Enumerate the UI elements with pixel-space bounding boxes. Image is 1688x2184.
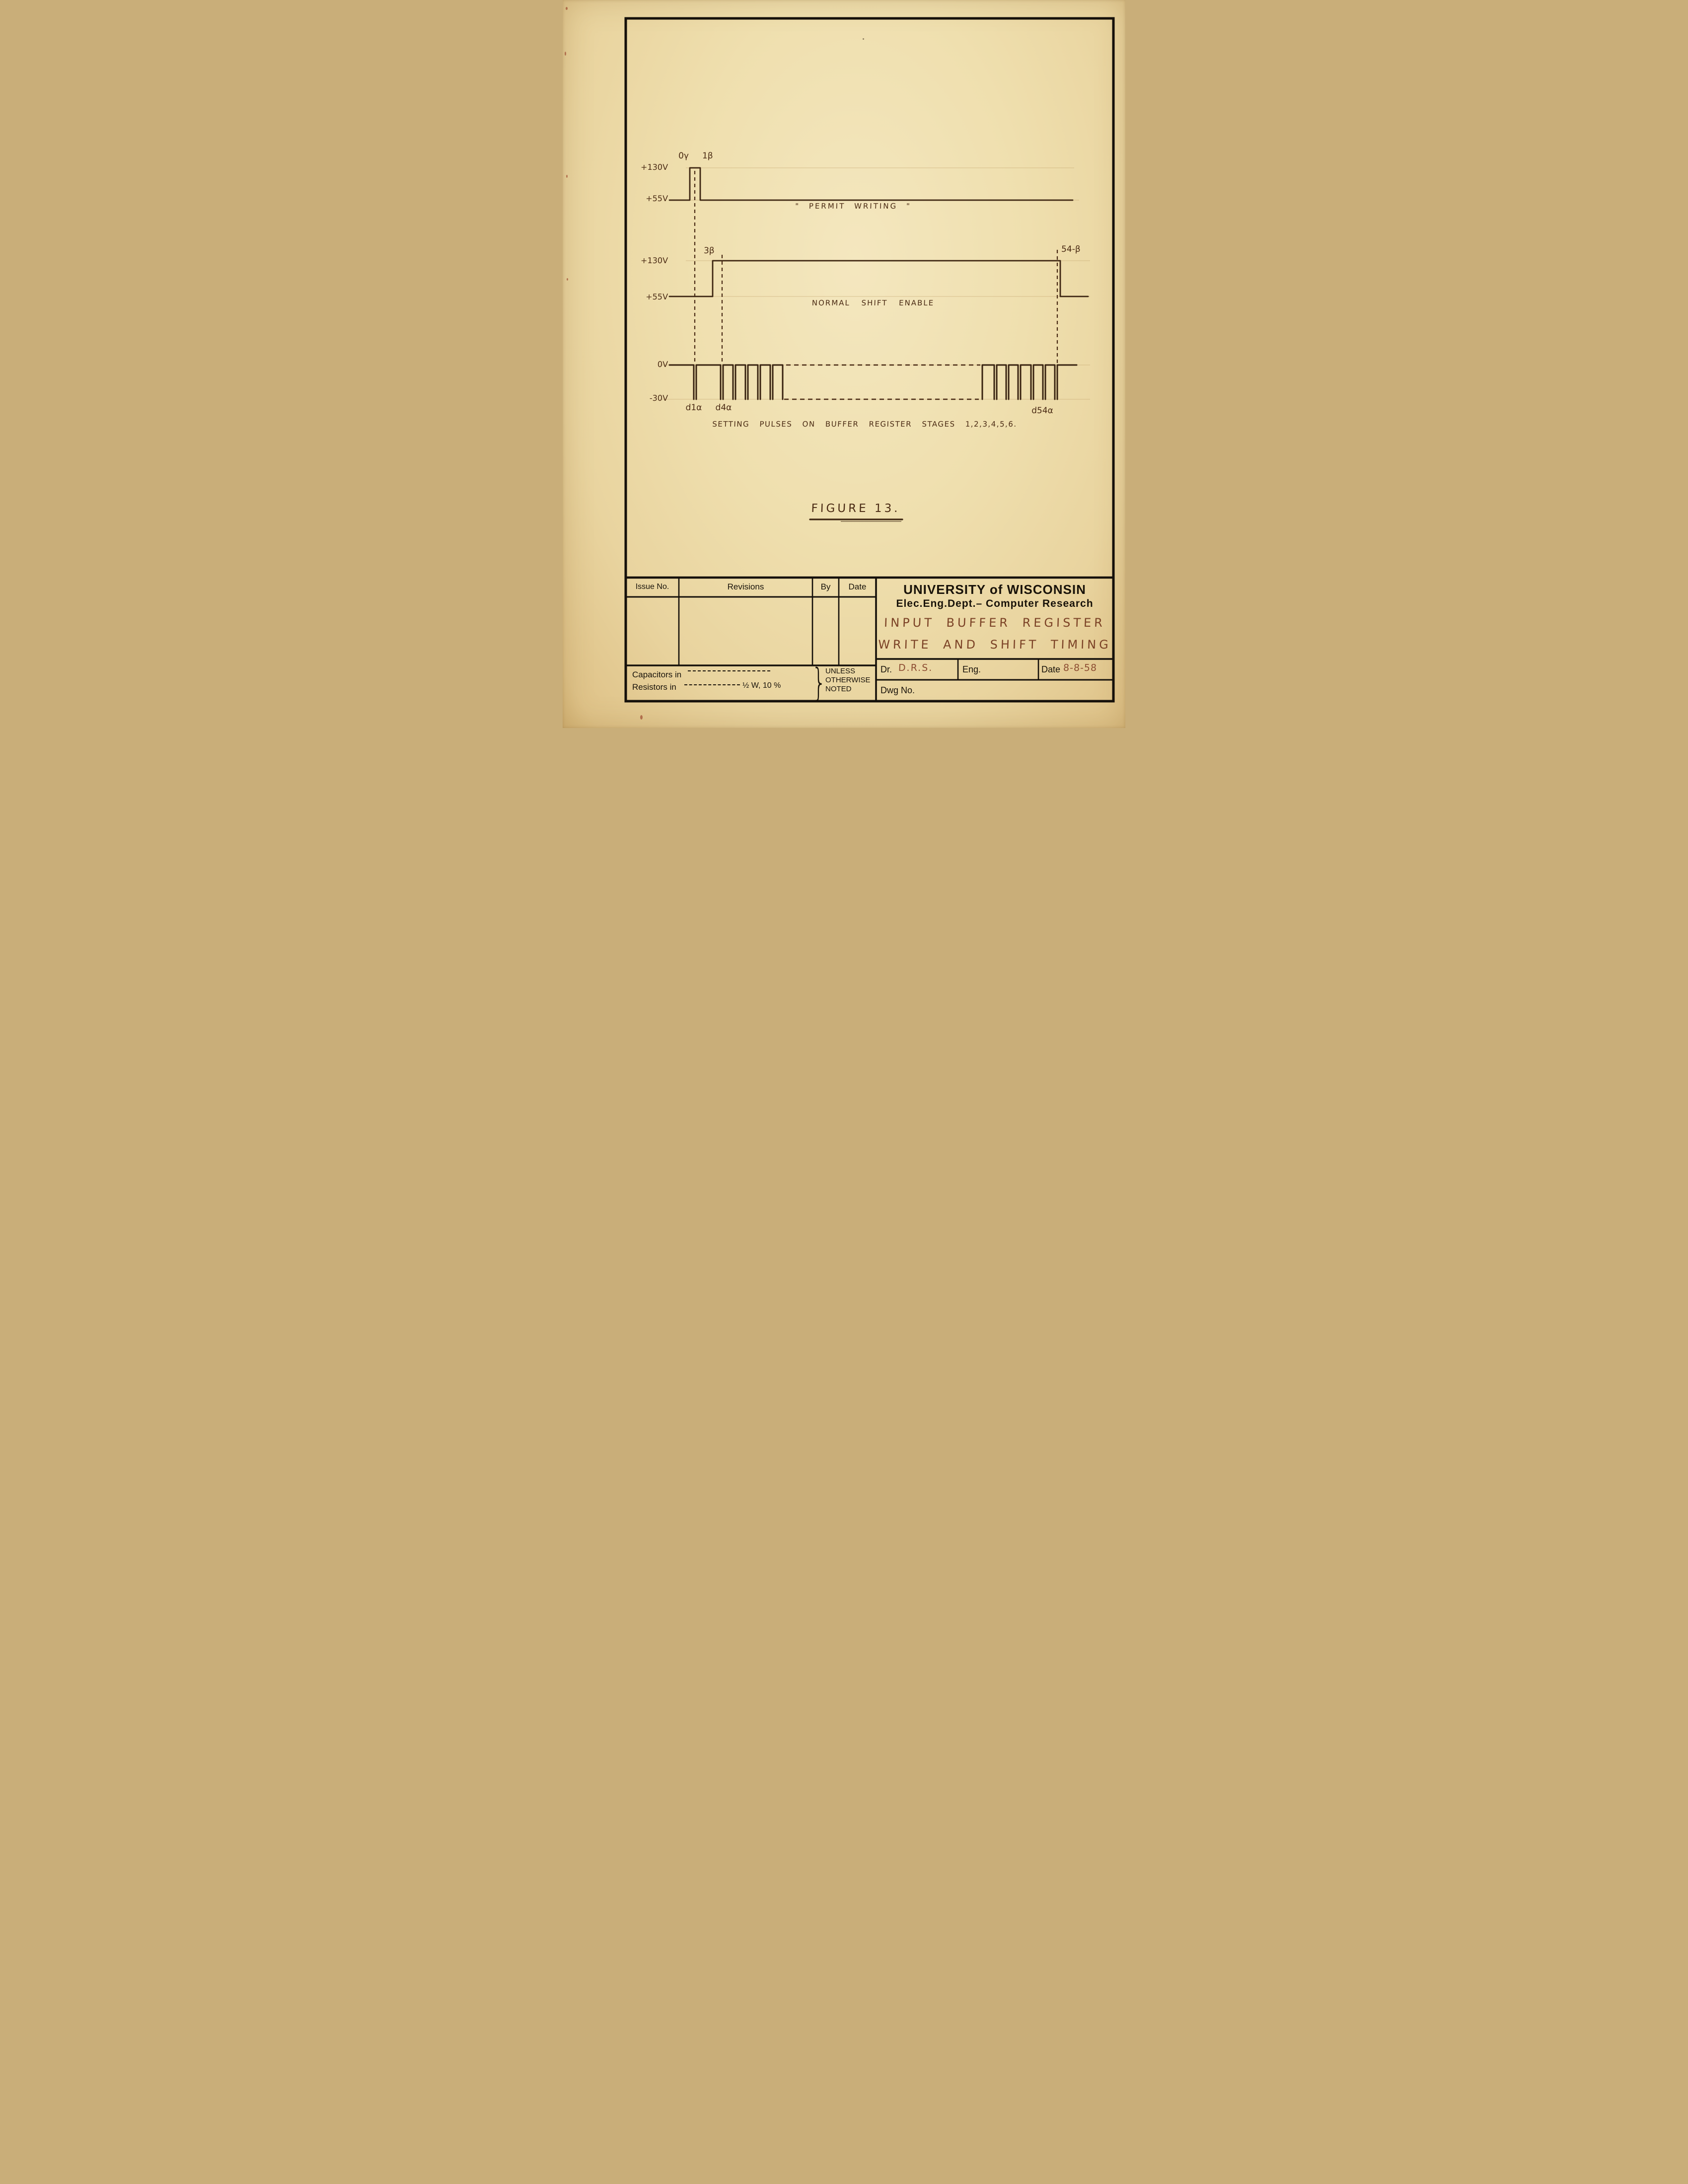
w1-low-voltage-label: +55V xyxy=(641,194,668,203)
w3-d54-label: d54α xyxy=(1026,406,1059,416)
revisions-header: Revisions xyxy=(679,582,812,592)
setting-pulses-right-group xyxy=(982,365,1077,399)
drawing-title-line1: INPUT BUFFER REGISTER xyxy=(876,616,1114,630)
university-name: UNIVERSITY of WISCONSIN xyxy=(876,582,1113,597)
w1-caption: " PERMIT WRITING " xyxy=(776,202,931,211)
by-header: By xyxy=(812,582,839,592)
notes-line3: NOTED xyxy=(825,685,852,693)
notes-line1: UNLESS xyxy=(825,667,855,675)
issue-no-header: Issue No. xyxy=(626,582,679,591)
w3-d1-label: d1α xyxy=(681,403,707,413)
w1-high-voltage-label: +130V xyxy=(637,162,668,172)
department-name: Elec.Eng.Dept.– Computer Research xyxy=(876,598,1113,610)
w3-low-voltage-label: -30V xyxy=(640,393,668,403)
date-label: Date xyxy=(1041,664,1060,675)
resistors-note: Resistors in xyxy=(632,682,676,692)
notes-brace: } xyxy=(811,664,826,701)
w2-rise-label: 3β xyxy=(704,246,715,256)
dwg-no-label: Dwg No. xyxy=(881,685,915,696)
notes-line2: OTHERWISE xyxy=(825,676,871,684)
date-header: Date xyxy=(839,582,876,592)
eng-label: Eng. xyxy=(962,664,981,675)
drawing-sheet: +130V 0γ 1β +55V " PERMIT WRITING " +130… xyxy=(563,0,1125,728)
w2-caption: NORMAL SHIFT ENABLE xyxy=(795,298,952,307)
date-value: 8-8-58 xyxy=(1063,662,1098,673)
resistors-blank xyxy=(684,684,740,685)
w2-high-voltage-label: +130V xyxy=(636,256,668,265)
w3-high-voltage-label: 0V xyxy=(650,360,668,369)
w3-caption: SETTING PULSES ON BUFFER REGISTER STAGES… xyxy=(706,420,1024,429)
permit-writing-waveform xyxy=(669,168,1073,200)
drawing-title-line2: WRITE AND SHIFT TIMING xyxy=(876,638,1114,652)
dr-value: D.R.S. xyxy=(898,662,933,673)
w3-d4-label: d4α xyxy=(711,403,737,413)
figure-label: FIGURE 13. xyxy=(796,502,916,515)
w1-gamma-label: 0γ xyxy=(678,151,689,161)
w2-low-voltage-label: +55V xyxy=(637,292,668,301)
w1-beta-label: 1β xyxy=(702,151,713,161)
dr-label: Dr. xyxy=(881,664,892,675)
shift-enable-waveform xyxy=(669,261,1088,296)
capacitors-blank xyxy=(688,670,770,671)
setting-pulses-left-group xyxy=(669,365,783,399)
capacitors-note: Capacitors in xyxy=(632,670,681,680)
resistors-value: ½ W, 10 % xyxy=(742,681,781,690)
w2-fall-label: 54-β xyxy=(1061,244,1081,254)
